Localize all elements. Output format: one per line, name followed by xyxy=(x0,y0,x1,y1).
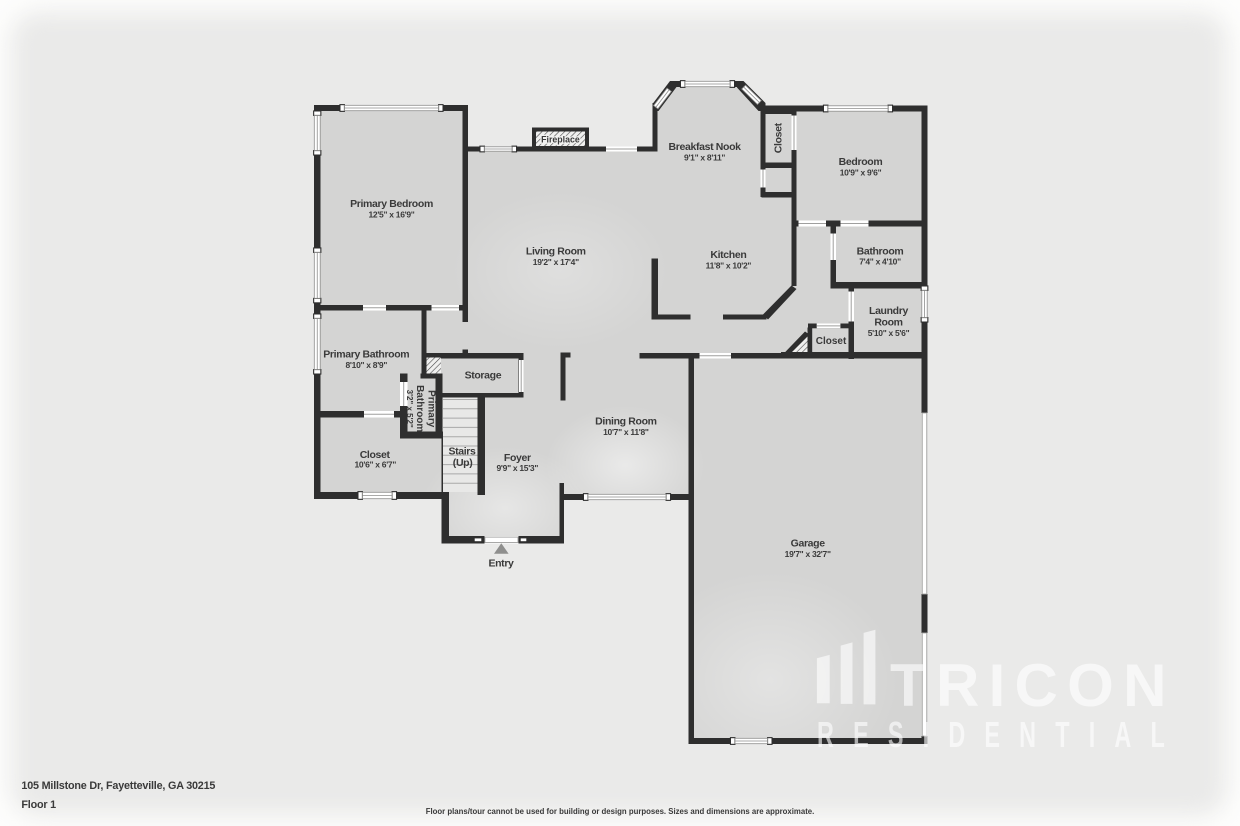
svg-text:Entry: Entry xyxy=(488,558,514,570)
svg-text:10'7" x 11'8": 10'7" x 11'8" xyxy=(603,427,649,437)
svg-text:7'4" x 4'10": 7'4" x 4'10" xyxy=(859,256,901,266)
svg-text:Kitchen: Kitchen xyxy=(710,249,746,261)
svg-text:Bathroom: Bathroom xyxy=(414,385,425,432)
svg-text:11'8" x 10'2": 11'8" x 10'2" xyxy=(706,260,752,270)
svg-text:10'6" x 6'7": 10'6" x 6'7" xyxy=(355,459,397,469)
svg-text:Laundry: Laundry xyxy=(869,305,908,317)
svg-text:8'10" x 8'9": 8'10" x 8'9" xyxy=(346,360,388,370)
svg-text:Living Room: Living Room xyxy=(526,246,586,258)
svg-text:12'5" x 16'9": 12'5" x 16'9" xyxy=(368,209,414,219)
svg-text:Room: Room xyxy=(874,317,902,329)
svg-text:Closet: Closet xyxy=(816,336,847,347)
svg-text:19'7" x 32'7": 19'7" x 32'7" xyxy=(785,549,831,559)
svg-text:Garage: Garage xyxy=(791,538,826,550)
svg-text:3'2" x 5'2": 3'2" x 5'2" xyxy=(405,390,414,428)
svg-text:TRICON: TRICON xyxy=(890,652,1176,719)
svg-text:Stairs: Stairs xyxy=(448,446,476,458)
svg-text:Storage: Storage xyxy=(465,370,502,382)
svg-text:105 Millstone Dr, Fayetteville: 105 Millstone Dr, Fayetteville, GA 30215 xyxy=(21,780,215,792)
svg-text:Closet: Closet xyxy=(773,122,785,153)
svg-text:Bedroom: Bedroom xyxy=(839,156,883,168)
svg-text:RESIDENTIAL: RESIDENTIAL xyxy=(817,716,1184,755)
svg-text:Primary: Primary xyxy=(425,390,436,428)
svg-text:Breakfast Nook: Breakfast Nook xyxy=(669,141,742,153)
svg-text:Floor plans/tour cannot be use: Floor plans/tour cannot be used for buil… xyxy=(426,807,815,816)
svg-text:9'9" x 15'3": 9'9" x 15'3" xyxy=(497,463,539,473)
svg-text:5'10" x 5'6": 5'10" x 5'6" xyxy=(868,328,910,338)
svg-text:(Up): (Up) xyxy=(453,457,473,469)
svg-text:Dining Room: Dining Room xyxy=(595,416,656,428)
svg-text:19'2" x 17'4": 19'2" x 17'4" xyxy=(533,257,579,267)
svg-text:Primary Bathroom: Primary Bathroom xyxy=(323,349,409,361)
svg-text:9'1" x 8'11": 9'1" x 8'11" xyxy=(684,152,725,162)
svg-text:Floor 1: Floor 1 xyxy=(21,799,56,811)
svg-text:Fireplace: Fireplace xyxy=(541,135,580,145)
svg-text:10'9" x 9'6": 10'9" x 9'6" xyxy=(840,167,882,177)
svg-text:Primary Bedroom: Primary Bedroom xyxy=(350,198,433,210)
